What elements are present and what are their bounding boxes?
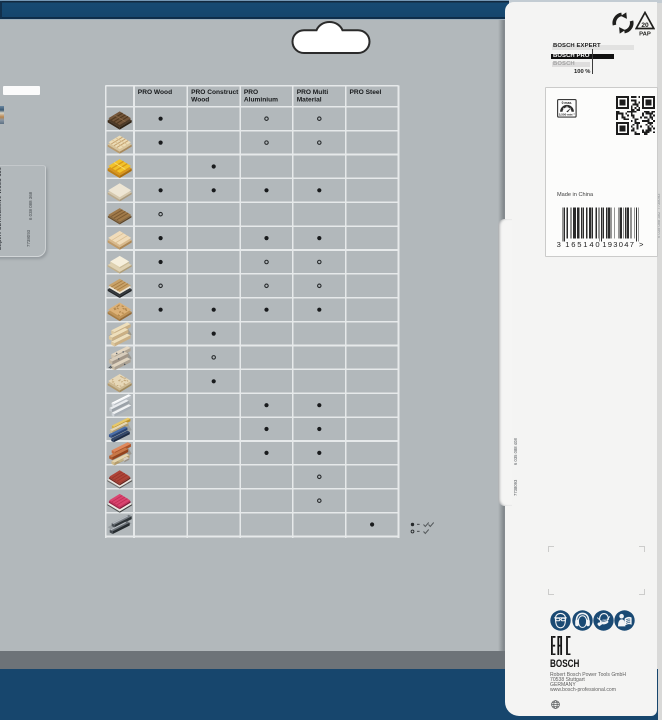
svg-text:PRO Steel: PRO Steel: [350, 89, 382, 96]
svg-text:PRO Wood: PRO Wood: [138, 89, 172, 96]
svg-text:165140: 165140: [565, 240, 599, 249]
svg-text:5,500 min⁻¹: 5,500 min⁻¹: [559, 112, 575, 116]
svg-text:193047: 193047: [602, 240, 634, 249]
svg-text:>: >: [639, 240, 644, 249]
svg-text:Wood: Wood: [191, 97, 209, 104]
svg-text:PRO: PRO: [244, 89, 258, 96]
svg-text:Material: Material: [297, 97, 322, 104]
svg-text:PAP: PAP: [639, 31, 651, 37]
svg-text:PRO Construct: PRO Construct: [191, 89, 239, 96]
svg-text:Aluminium: Aluminium: [244, 97, 278, 104]
svg-text:PRO Multi: PRO Multi: [297, 89, 329, 96]
svg-text:3: 3: [557, 240, 561, 249]
svg-text:20: 20: [641, 22, 649, 29]
svg-text:0 max.: 0 max.: [562, 100, 573, 104]
